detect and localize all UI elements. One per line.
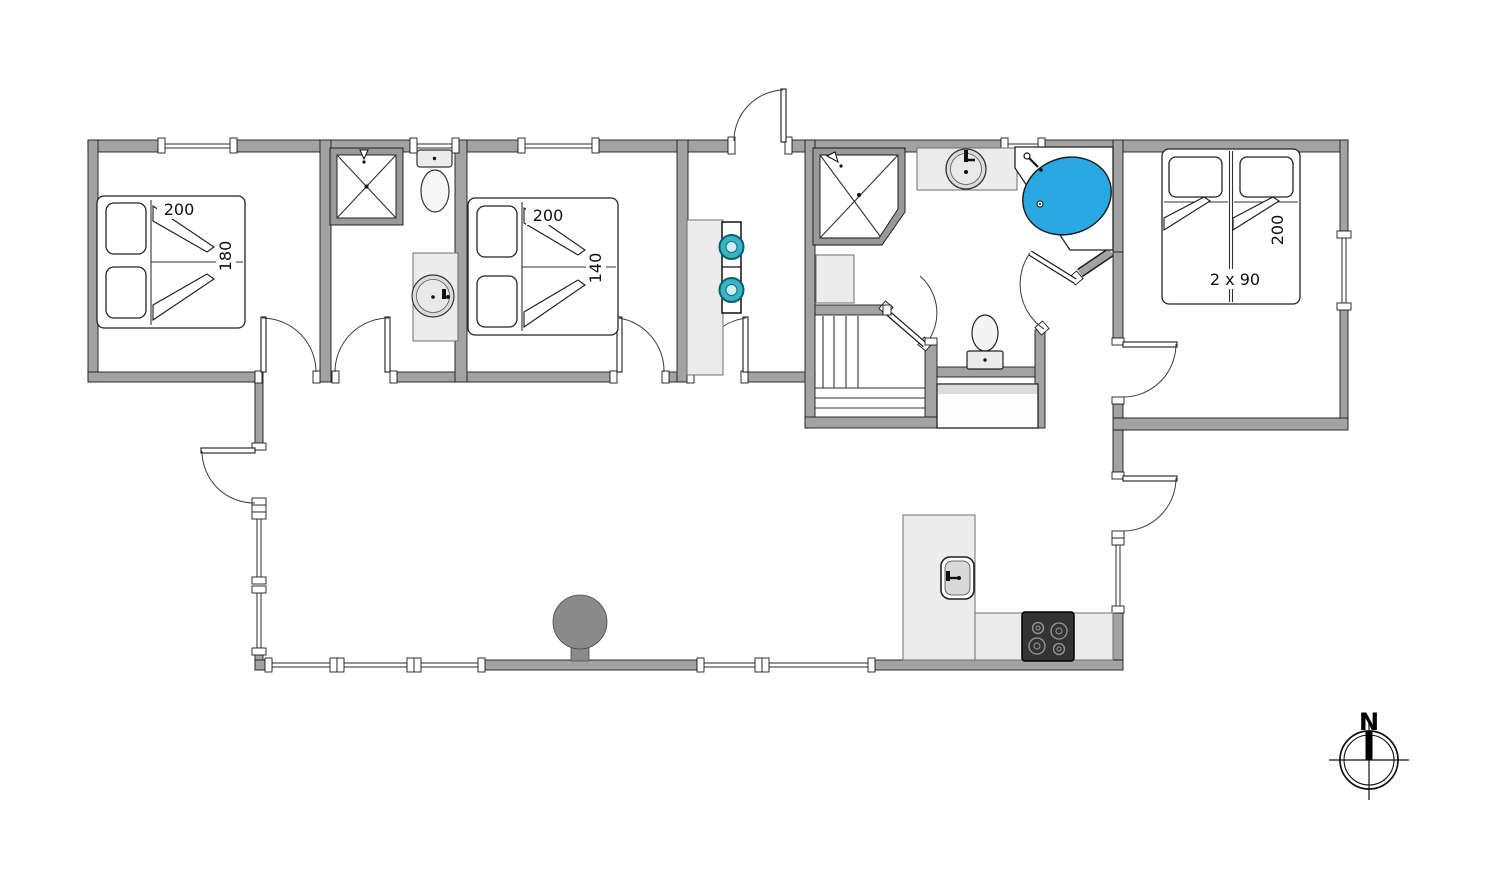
- window: [252, 505, 266, 584]
- bed-width-label: 200: [533, 206, 564, 225]
- cabinet: [937, 384, 1038, 428]
- window: [518, 138, 599, 153]
- pillow: [1169, 157, 1222, 197]
- shower-cabin-left: [330, 148, 403, 225]
- window: [337, 658, 414, 672]
- faucet-icon: [442, 289, 446, 299]
- vanity-sink-left: [412, 253, 458, 341]
- terrace-door-right: [1112, 472, 1177, 538]
- wood-stove: [553, 595, 607, 661]
- bed-count-label: 2 x 90: [1210, 270, 1260, 289]
- window: [265, 658, 337, 672]
- pillow: [477, 206, 517, 257]
- kitchen-island: [903, 515, 975, 660]
- stairs: [815, 305, 937, 408]
- bathroom-left-door: [332, 317, 397, 383]
- bed-depth-label: 180: [216, 241, 235, 272]
- closet: [816, 255, 854, 303]
- bed-length-label: 200: [1268, 215, 1287, 246]
- kitchen-counter: [975, 612, 1113, 661]
- pillow: [1240, 157, 1293, 197]
- pillow: [106, 267, 146, 318]
- bedroom-right-door: [1112, 338, 1177, 404]
- compass-north-label: N: [1359, 708, 1379, 736]
- window: [158, 138, 237, 153]
- toilet-right: [967, 315, 1003, 369]
- window: [1112, 538, 1124, 613]
- compass-rose: N: [1329, 708, 1409, 800]
- entry-door: [728, 89, 792, 154]
- corner-bathtub: [1012, 145, 1123, 250]
- cooktop: [1022, 612, 1074, 661]
- faucet-icon: [946, 571, 950, 581]
- pillow: [106, 203, 146, 254]
- double-bed-middle: 200 140: [468, 198, 618, 335]
- bed-width-label: 200: [164, 200, 195, 219]
- terrace-door-left: [201, 443, 266, 505]
- washer-dryer-stack: [687, 220, 744, 375]
- shower-cabin-right: [813, 148, 905, 245]
- window: [762, 658, 875, 672]
- bed-depth-label: 140: [586, 253, 605, 284]
- double-bed-left: 200 180: [97, 196, 245, 328]
- round-sink-counter: [917, 148, 1017, 190]
- faucet-icon: [964, 150, 968, 162]
- bathroom-left: [330, 148, 458, 341]
- bathroom-right: [813, 145, 1122, 369]
- bedroom-middle-door: [610, 317, 669, 383]
- pillow: [477, 276, 517, 327]
- floor-plan-drawing: 200 180: [0, 0, 1512, 880]
- bathroom-right-corridor-door: [1020, 253, 1083, 335]
- window: [697, 658, 762, 672]
- window: [252, 586, 266, 655]
- window: [1337, 231, 1351, 310]
- twin-beds-right: 2 x 90 200: [1162, 149, 1300, 304]
- window: [414, 658, 485, 672]
- toilet-left: [417, 150, 452, 212]
- bedroom-left-door: [255, 317, 320, 383]
- floor-plan-canvas: 200 180: [0, 0, 1512, 880]
